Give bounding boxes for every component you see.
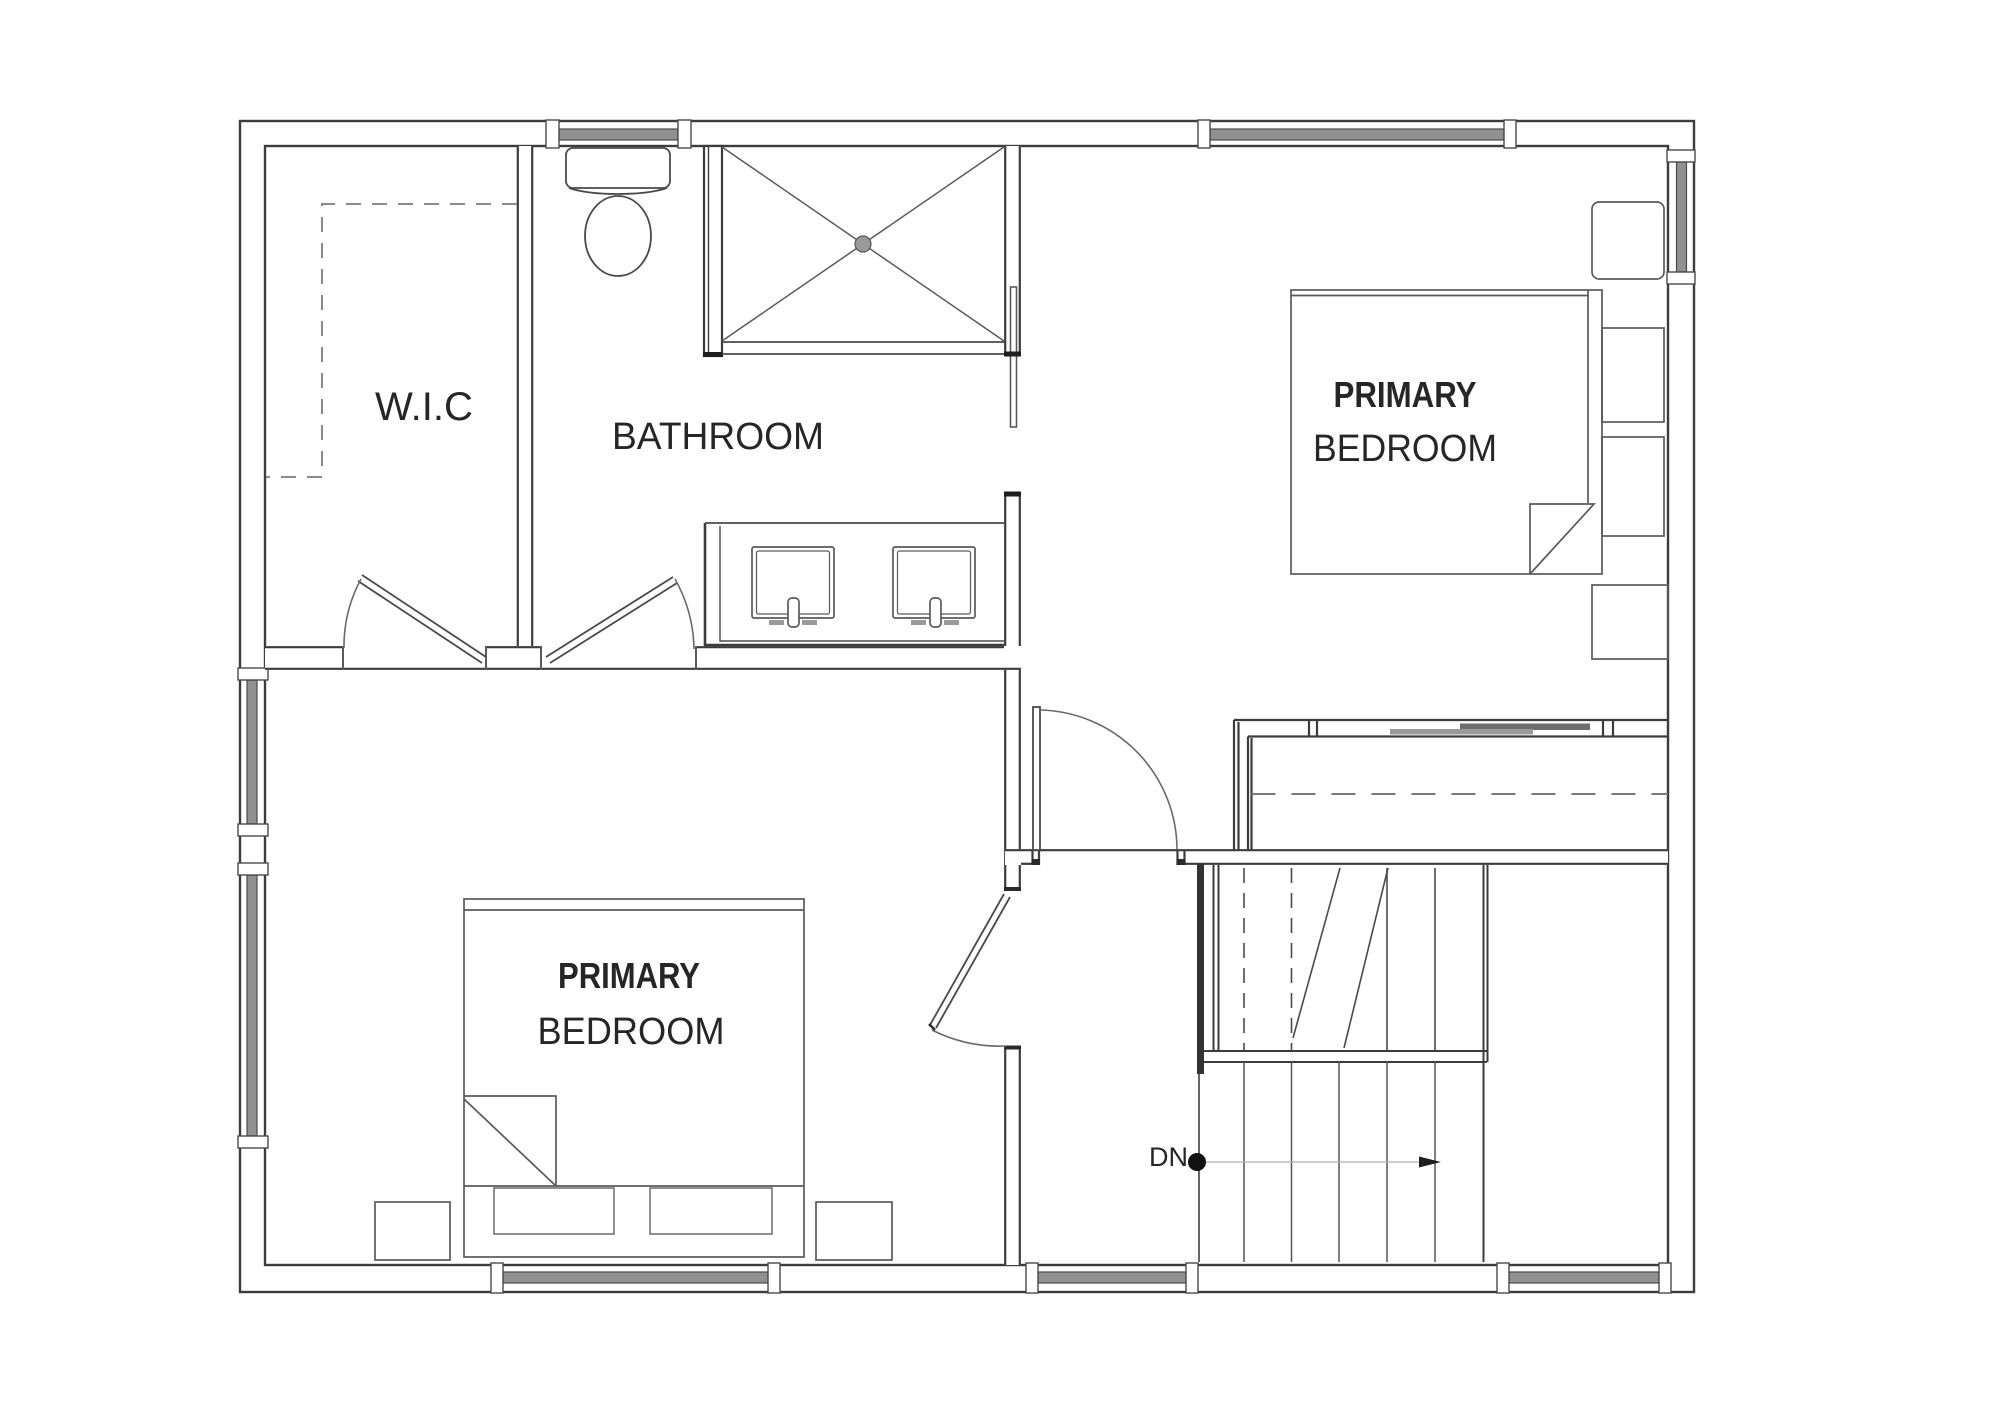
svg-text:BATHROOM: BATHROOM xyxy=(612,416,824,458)
svg-text:PRIMARY: PRIMARY xyxy=(558,955,700,996)
svg-text:BEDROOM: BEDROOM xyxy=(1313,428,1497,470)
svg-text:W.I.C: W.I.C xyxy=(375,385,473,429)
svg-text:PRIMARY: PRIMARY xyxy=(1334,374,1477,415)
svg-text:DN: DN xyxy=(1149,1142,1188,1172)
svg-text:BEDROOM: BEDROOM xyxy=(538,1011,725,1053)
